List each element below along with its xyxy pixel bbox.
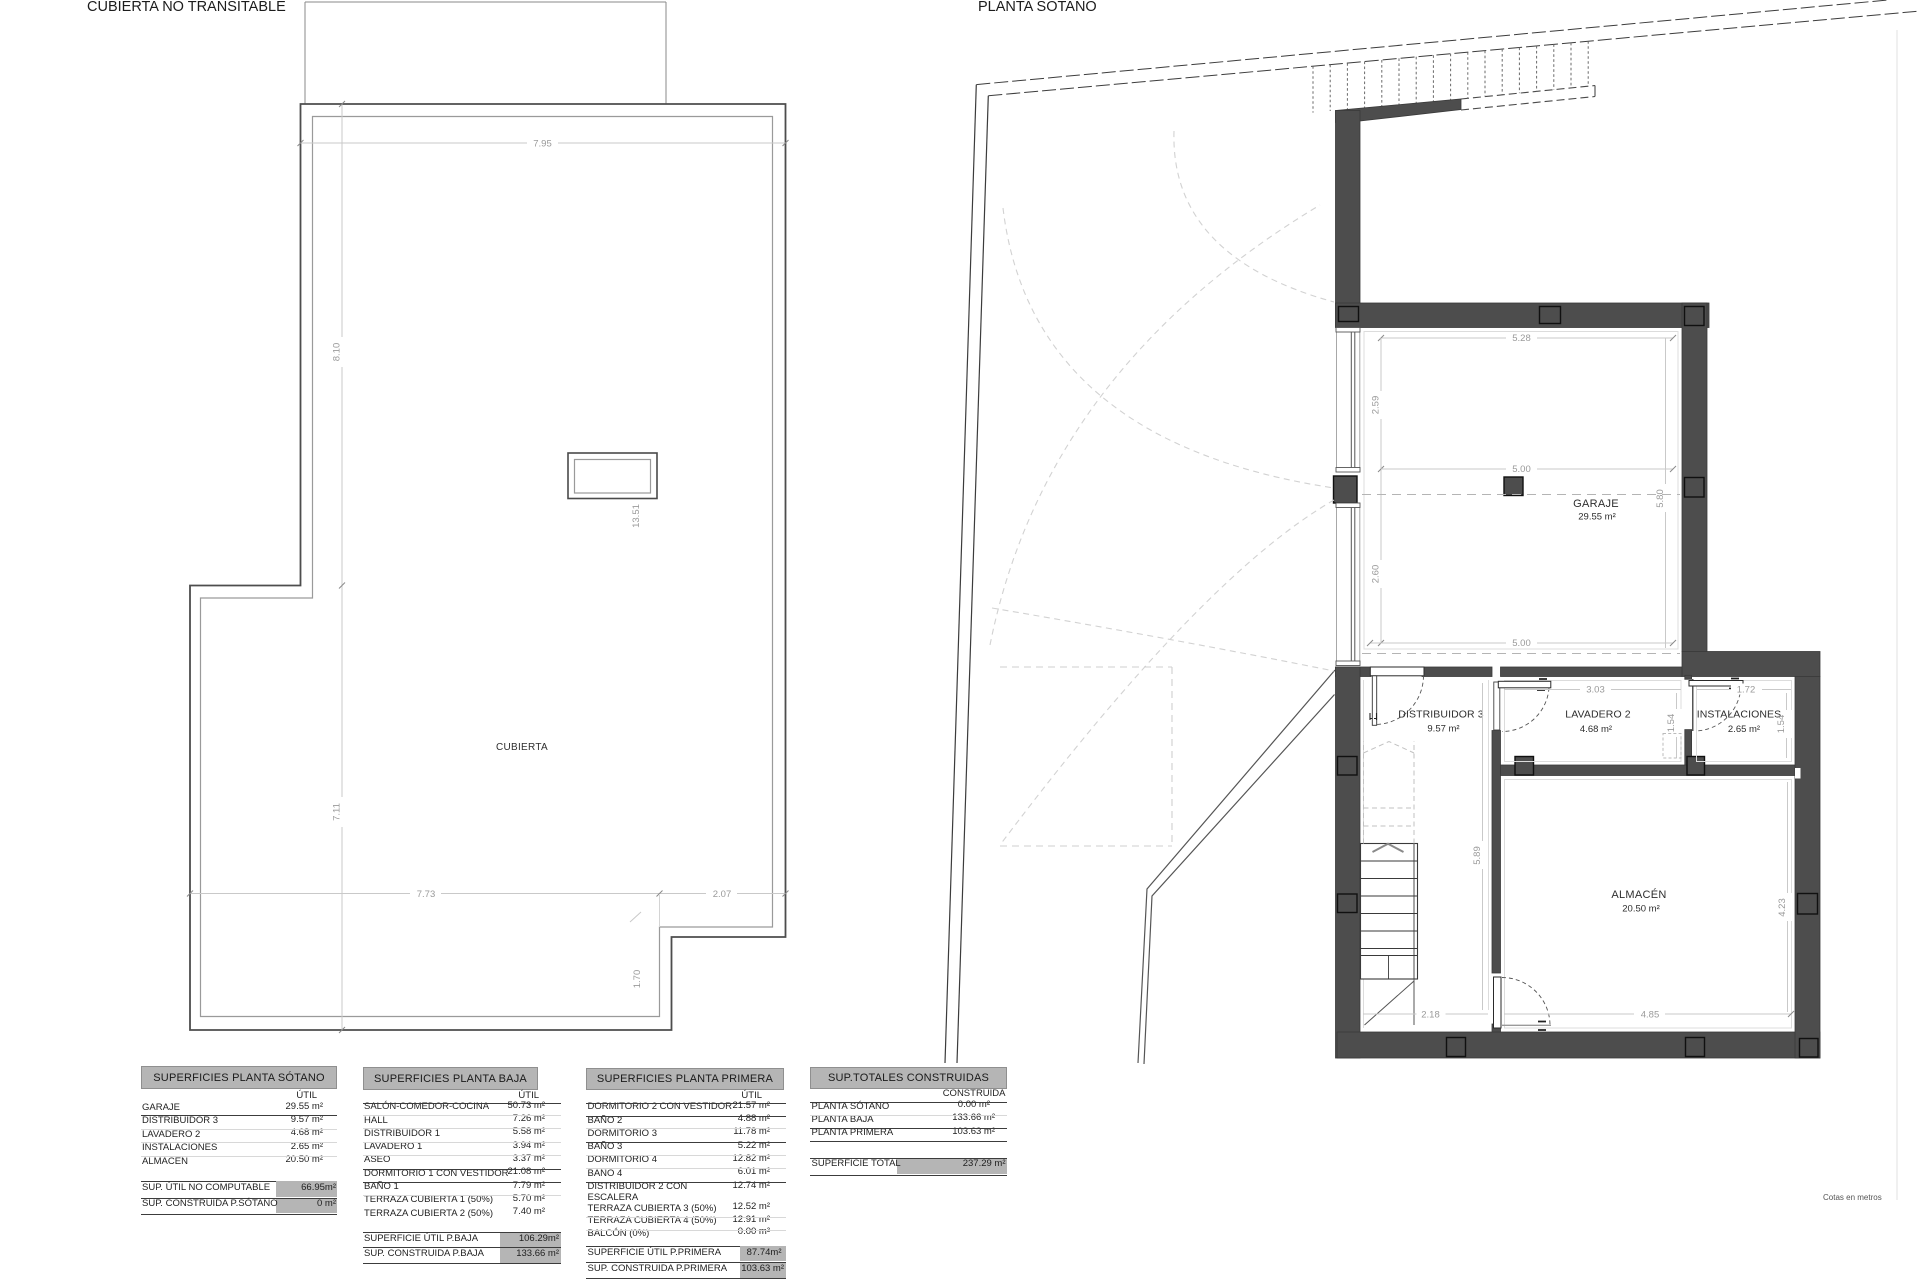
svg-text:4.23: 4.23 bbox=[1777, 898, 1788, 917]
svg-text:Cotas en metros: Cotas en metros bbox=[1823, 1193, 1882, 1202]
svg-text:GARAJE: GARAJE bbox=[1573, 498, 1619, 510]
svg-text:7.11: 7.11 bbox=[332, 803, 343, 821]
svg-text:5.00: 5.00 bbox=[1512, 464, 1531, 475]
svg-text:ALMACÉN: ALMACÉN bbox=[1611, 888, 1666, 901]
svg-text:8.10: 8.10 bbox=[332, 343, 343, 362]
svg-text:1.72: 1.72 bbox=[1737, 685, 1756, 696]
svg-text:1.54: 1.54 bbox=[1776, 715, 1787, 734]
svg-text:2.65 m²: 2.65 m² bbox=[1728, 724, 1760, 735]
svg-text:9.57 m²: 9.57 m² bbox=[1427, 724, 1459, 735]
svg-text:2.59: 2.59 bbox=[1371, 396, 1382, 415]
svg-text:5.28: 5.28 bbox=[1512, 333, 1531, 344]
svg-text:5.80: 5.80 bbox=[1655, 489, 1666, 508]
svg-text:1.54: 1.54 bbox=[1666, 714, 1677, 733]
svg-text:LAVADERO 2: LAVADERO 2 bbox=[1565, 709, 1630, 721]
svg-text:2.60: 2.60 bbox=[1371, 565, 1382, 584]
svg-text:5.00: 5.00 bbox=[1512, 638, 1531, 649]
svg-text:CUBIERTA: CUBIERTA bbox=[496, 742, 548, 753]
svg-text:20.50 m²: 20.50 m² bbox=[1622, 904, 1660, 915]
svg-text:7.95: 7.95 bbox=[533, 139, 552, 150]
svg-text:4.85: 4.85 bbox=[1641, 1010, 1660, 1021]
svg-text:DISTRIBUIDOR 3: DISTRIBUIDOR 3 bbox=[1398, 709, 1483, 721]
svg-text:1.70: 1.70 bbox=[632, 970, 643, 989]
svg-text:2.07: 2.07 bbox=[713, 889, 732, 900]
svg-text:CUBIERTA NO TRANSITABLE: CUBIERTA NO TRANSITABLE bbox=[87, 0, 286, 15]
svg-text:INSTALACIONES: INSTALACIONES bbox=[1697, 709, 1782, 721]
svg-text:PLANTA SÓTANO: PLANTA SÓTANO bbox=[978, 0, 1097, 15]
svg-text:3.03: 3.03 bbox=[1586, 685, 1605, 696]
svg-text:7.73: 7.73 bbox=[417, 889, 436, 900]
svg-text:29.55 m²: 29.55 m² bbox=[1578, 512, 1616, 523]
svg-text:5.89: 5.89 bbox=[1472, 846, 1483, 865]
svg-text:2.18: 2.18 bbox=[1421, 1010, 1440, 1021]
svg-text:4.68 m²: 4.68 m² bbox=[1580, 724, 1612, 735]
svg-text:13.51: 13.51 bbox=[631, 504, 642, 528]
